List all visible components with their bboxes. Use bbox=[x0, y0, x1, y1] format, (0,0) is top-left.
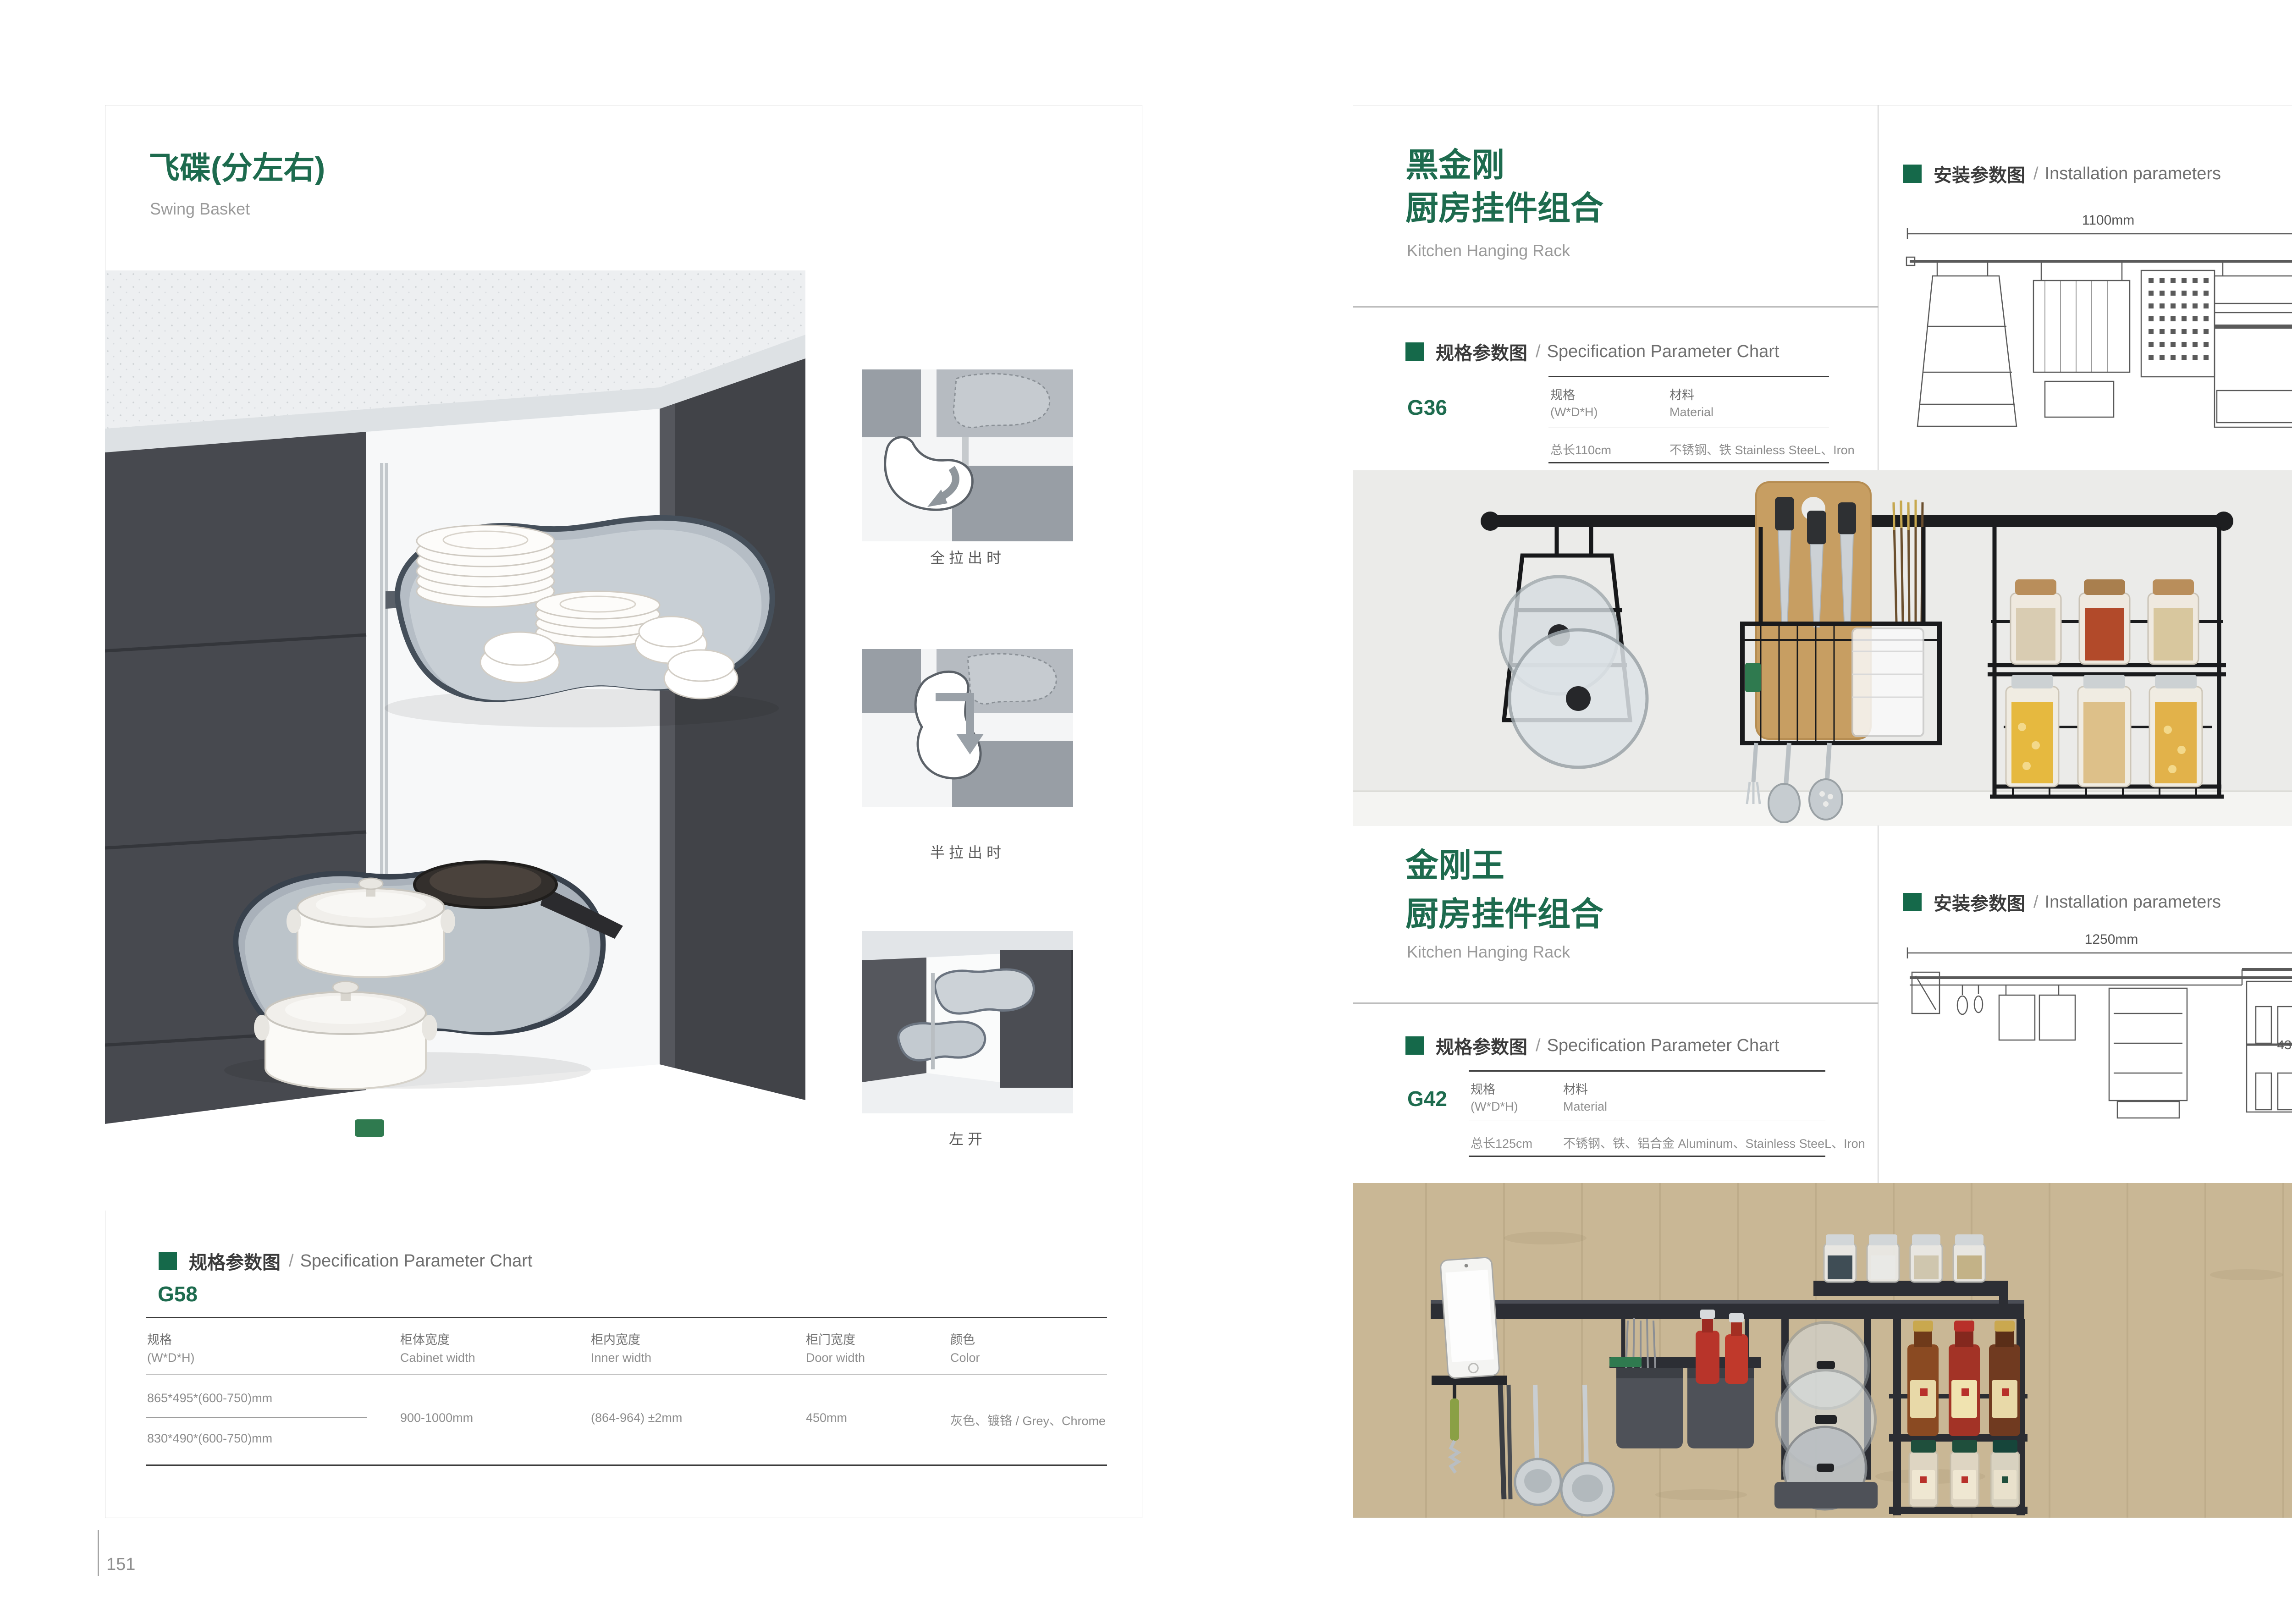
col-header-zh: 材料 bbox=[1563, 1079, 1588, 1097]
layout-divider-title-top bbox=[1353, 306, 1879, 308]
layout-divider-vertical-bottom bbox=[1878, 826, 1879, 1183]
cell-spec-2: 830*490*(600-750)mm bbox=[147, 1431, 272, 1446]
product-title-line2: 厨房挂件组合 bbox=[1405, 897, 1603, 933]
col-header-en: (W*D*H) bbox=[1550, 405, 1598, 419]
product-title-line2: 厨房挂件组合 bbox=[1405, 191, 1603, 227]
product-code: G42 bbox=[1407, 1086, 1447, 1111]
table-rule-top bbox=[146, 1317, 1107, 1318]
usage-diagram-full-pullout bbox=[862, 369, 1073, 541]
col-header-zh: 柜内宽度 bbox=[591, 1330, 640, 1348]
col-header-zh: 规格 bbox=[147, 1330, 172, 1348]
spec-chart-header: 规格参数图 / Specification Parameter Chart bbox=[159, 1248, 532, 1274]
dim-height-label: 430mm bbox=[2277, 1038, 2292, 1052]
install-header-zh: 安装参数图 bbox=[1934, 889, 2025, 915]
table-rule-spec-split bbox=[146, 1417, 367, 1418]
install-params-header: 安装参数图 / Installation parameters bbox=[1903, 889, 2221, 915]
product-title-line1: 金刚王 bbox=[1405, 848, 1504, 884]
spec-header-en: Specification Parameter Chart bbox=[1547, 1036, 1780, 1056]
usage-diagram-left-open bbox=[862, 931, 1073, 1113]
page-right: 黑金刚 厨房挂件组合 Kitchen Hanging Rack 规格参数图 / … bbox=[1353, 105, 2292, 1518]
spec-header-zh: 规格参数图 bbox=[1436, 338, 1527, 365]
product-subtitle: Kitchen Hanging Rack bbox=[1407, 241, 1570, 260]
spec-table: 规格 (W*D*H) 材料 Material 总长110cm 不锈钢、铁 Sta… bbox=[1548, 376, 1829, 464]
install-header-en: Installation parameters bbox=[2045, 892, 2221, 912]
spec-header-sep: / bbox=[1536, 1036, 1541, 1056]
section-marker-icon bbox=[159, 1252, 177, 1270]
cell-spec: 总长110cm bbox=[1550, 440, 1611, 458]
spec-header-en: Specification Parameter Chart bbox=[300, 1251, 533, 1271]
section-marker-icon bbox=[1903, 165, 1922, 183]
dim-width-label: 1100mm bbox=[2082, 213, 2135, 228]
cell-color: 灰色、镀铬 / Grey、Chrome bbox=[950, 1411, 1106, 1429]
install-drawing-g36: 1100mm 420mm bbox=[1894, 206, 2292, 456]
section-marker-icon bbox=[1903, 893, 1922, 911]
col-header-en: Cabinet width bbox=[400, 1351, 475, 1365]
col-header-zh: 柜体宽度 bbox=[400, 1330, 450, 1348]
footer-tick-left bbox=[98, 1530, 99, 1576]
col-header-zh: 规格 bbox=[1550, 385, 1575, 403]
col-header-en: Material bbox=[1563, 1100, 1607, 1114]
col-header-en: Door width bbox=[806, 1351, 865, 1365]
page-subtitle: Swing Basket bbox=[150, 199, 250, 219]
cell-material: 不锈钢、铁、铝合金 Aluminum、Stainless SteeL、Iron bbox=[1563, 1134, 1865, 1151]
page-number-left: 151 bbox=[106, 1555, 135, 1574]
install-drawing-g42: 1250mm 430mm bbox=[1894, 926, 2292, 1123]
col-header-zh: 材料 bbox=[1669, 385, 1694, 403]
col-header-en: Inner width bbox=[591, 1351, 651, 1365]
install-header-zh: 安装参数图 bbox=[1934, 160, 2025, 187]
table-rule-bottom bbox=[146, 1464, 1107, 1466]
spec-chart-header: 规格参数图 / Specification Parameter Chart bbox=[1405, 338, 1779, 365]
spec-table: 规格 (W*D*H) 柜体宽度 Cabinet width 柜内宽度 Inner… bbox=[146, 1317, 1107, 1468]
layout-divider-title-bottom bbox=[1353, 1002, 1879, 1004]
cell-spec: 总长125cm bbox=[1471, 1134, 1532, 1151]
table-rule-bottom bbox=[1469, 1156, 1825, 1157]
install-header-sep: / bbox=[2033, 164, 2039, 184]
usage-diagram-half-pullout bbox=[862, 649, 1073, 807]
dim-width-label: 1250mm bbox=[2085, 932, 2138, 947]
col-header-en: (W*D*H) bbox=[1471, 1100, 1518, 1114]
col-header-en: (W*D*H) bbox=[147, 1351, 194, 1365]
col-header-en: Color bbox=[950, 1351, 980, 1365]
table-rule-top bbox=[1548, 376, 1829, 377]
cell-inner-width: (864-964) ±2mm bbox=[591, 1411, 682, 1425]
cell-door-width: 450mm bbox=[806, 1411, 847, 1425]
install-header-en: Installation parameters bbox=[2045, 164, 2221, 184]
product-subtitle: Kitchen Hanging Rack bbox=[1407, 942, 1570, 962]
page-title: 飞碟(分左右) bbox=[149, 151, 325, 186]
col-header-zh: 规格 bbox=[1471, 1079, 1495, 1097]
table-rule-top bbox=[1469, 1070, 1825, 1072]
spec-header-sep: / bbox=[1536, 342, 1541, 362]
product-title-line1: 黑金刚 bbox=[1405, 148, 1504, 184]
table-rule-header bbox=[1469, 1121, 1825, 1121]
cell-material: 不锈钢、铁 Stainless SteeL、Iron bbox=[1669, 440, 1855, 458]
cell-cabinet-width: 900-1000mm bbox=[400, 1411, 473, 1425]
diagram-caption: 全拉出时 bbox=[862, 546, 1073, 567]
product-photo-g36 bbox=[1353, 470, 2292, 826]
install-params-header: 安装参数图 / Installation parameters bbox=[1903, 160, 2221, 187]
spec-header-sep: / bbox=[289, 1251, 294, 1271]
spec-header-zh: 规格参数图 bbox=[189, 1248, 281, 1274]
spec-chart-header: 规格参数图 / Specification Parameter Chart bbox=[1405, 1032, 1779, 1059]
table-rule-header bbox=[146, 1374, 1107, 1375]
diagram-caption: 左开 bbox=[862, 1128, 1073, 1149]
table-rule-bottom bbox=[1548, 462, 1829, 463]
layout-divider-vertical-top bbox=[1878, 105, 1879, 470]
product-code: G58 bbox=[158, 1282, 198, 1306]
product-code: G36 bbox=[1407, 395, 1447, 420]
table-rule-header bbox=[1548, 428, 1829, 428]
spec-header-en: Specification Parameter Chart bbox=[1547, 342, 1780, 362]
spec-header-zh: 规格参数图 bbox=[1436, 1032, 1527, 1059]
page-left: 飞碟(分左右) Swing Basket bbox=[105, 105, 1142, 1518]
col-header-zh: 颜色 bbox=[950, 1330, 975, 1348]
install-header-sep: / bbox=[2033, 892, 2039, 912]
col-header-zh: 柜门宽度 bbox=[806, 1330, 855, 1348]
col-header-en: Material bbox=[1669, 405, 1713, 419]
section-marker-icon bbox=[1405, 1036, 1424, 1055]
diagram-caption: 半拉出时 bbox=[862, 841, 1073, 862]
product-photo-g42 bbox=[1353, 1183, 2292, 1518]
swing-basket-photo bbox=[105, 270, 805, 1211]
cell-spec-1: 865*495*(600-750)mm bbox=[147, 1391, 272, 1405]
section-marker-icon bbox=[1405, 342, 1424, 361]
spec-table: 规格 (W*D*H) 材料 Material 总长125cm 不锈钢、铁、铝合金… bbox=[1469, 1070, 1825, 1158]
